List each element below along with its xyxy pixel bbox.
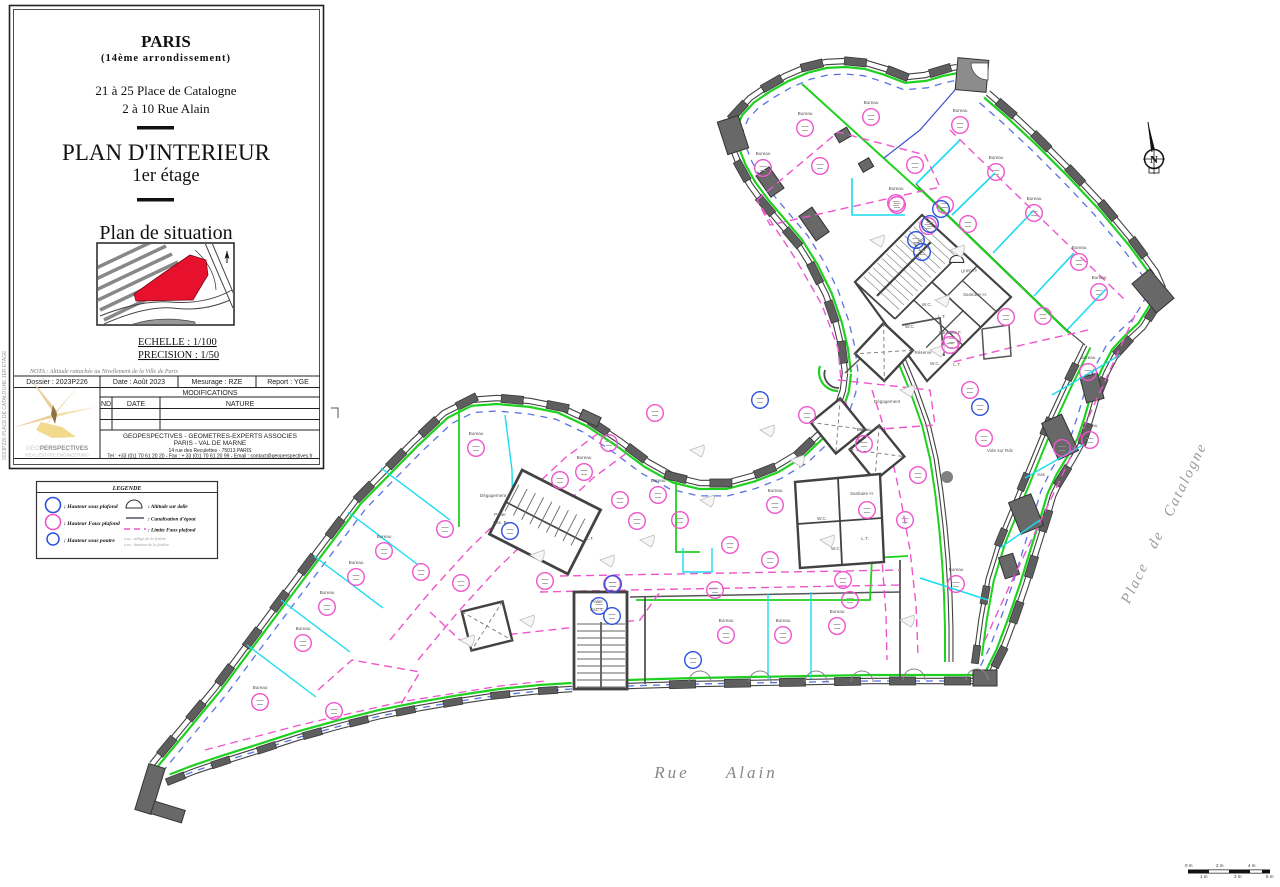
svg-text:Date : Août 2023: Date : Août 2023 [113, 379, 165, 386]
svg-text:W.C.: W.C. [930, 361, 940, 366]
svg-text:Bureau: Bureau [1072, 245, 1087, 250]
svg-text:IND.: IND. [99, 401, 113, 408]
svg-text:Bureau: Bureau [776, 618, 791, 623]
svg-text:: Hauteur sous plafond: : Hauteur sous plafond [64, 504, 118, 510]
svg-text:Bureau: Bureau [349, 560, 364, 565]
svg-text:Bureau: Bureau [469, 431, 484, 436]
svg-text:PLAN D'INTERIEUR: PLAN D'INTERIEUR [62, 140, 271, 165]
svg-text:: Canalisation d'égout: : Canalisation d'égout [148, 517, 196, 523]
svg-text:Bureau: Bureau [864, 100, 879, 105]
svg-text:Bureau: Bureau [296, 626, 311, 631]
svg-text:Esc. B: Esc. B [493, 520, 506, 525]
svg-text:3 m: 3 m [1234, 874, 1242, 879]
svg-text:0 m: 0 m [1185, 863, 1193, 868]
svg-text:: Hauteur sous poutre: : Hauteur sous poutre [64, 538, 115, 544]
svg-text:DATE: DATE [127, 401, 145, 408]
svg-text:Bureau: Bureau [756, 151, 771, 156]
svg-text:Plan de situation: Plan de situation [99, 222, 232, 244]
svg-text:Sas: Sas [1037, 472, 1046, 477]
svg-text:NATURE: NATURE [226, 401, 255, 408]
svg-text:L.T.: L.T. [953, 362, 960, 367]
svg-text:21 à 25 Place de Catalogne: 21 à 25 Place de Catalogne [95, 83, 236, 98]
svg-text:Esc. C: Esc. C [590, 607, 604, 612]
svg-text:Report : YGE: Report : YGE [267, 379, 309, 386]
svg-text:Tel : +33 (0)1 70 61 20 20 - F: Tel : +33 (0)1 70 61 20 20 - Fax : + 33 … [107, 454, 313, 460]
svg-text:Palier: Palier [494, 512, 506, 517]
svg-text:2 m: 2 m [1216, 863, 1224, 868]
svg-text:1er étage: 1er étage [132, 166, 199, 186]
svg-text:Bureau: Bureau [798, 111, 813, 116]
svg-text:W.C.: W.C. [905, 324, 915, 329]
svg-text:Bureau: Bureau [1083, 423, 1098, 428]
svg-text:Réserve: Réserve [914, 350, 932, 355]
svg-text:Sanitaire H.: Sanitaire H. [963, 292, 987, 297]
svg-text:5 m: 5 m [1266, 874, 1274, 879]
svg-text:Bureau: Bureau [989, 155, 1004, 160]
svg-text:PARIS - VAL DE MARNE: PARIS - VAL DE MARNE [174, 440, 247, 447]
svg-text:Dégagement: Dégagement [480, 493, 507, 498]
svg-text:Bureau: Bureau [1092, 275, 1107, 280]
svg-text:ECHELLE : 1/100: ECHELLE : 1/100 [138, 337, 217, 348]
svg-text:1 m: 1 m [1200, 874, 1208, 879]
svg-text:MODIFICATIONS: MODIFICATIONS [182, 390, 237, 397]
svg-text:x.xx : allège de la fenêtre: x.xx : allège de la fenêtre [123, 536, 166, 541]
svg-text:x.xx : hauteur de la fenêtre: x.xx : hauteur de la fenêtre [123, 542, 169, 547]
svg-text:Palier: Palier [591, 599, 603, 604]
svg-text:4 m: 4 m [1248, 863, 1256, 868]
svg-text:REAL ESTATE ENGINEERING: REAL ESTATE ENGINEERING [25, 453, 89, 458]
svg-text:2023P226 PLACE DE CATALOGNE: 2023P226 PLACE DE CATALOGNE 1ER ETAGE [2, 350, 8, 460]
svg-text:Sanitaire H.: Sanitaire H. [850, 491, 874, 496]
svg-text:Bureau: Bureau [830, 609, 845, 614]
svg-text:Bureau: Bureau [857, 427, 872, 432]
svg-text:Bureau: Bureau [949, 567, 964, 572]
svg-text:GEOPERSPECTIVES: GEOPERSPECTIVES [26, 445, 88, 452]
svg-text:: Altitude sur dalle: : Altitude sur dalle [148, 504, 188, 510]
svg-text:Bureau: Bureau [768, 488, 783, 493]
svg-text:Bureau: Bureau [377, 534, 392, 539]
svg-text:Bureau: Bureau [953, 108, 968, 113]
svg-text:2 à 10 Rue Alain: 2 à 10 Rue Alain [122, 101, 210, 116]
svg-text:W.C.: W.C. [922, 302, 932, 307]
svg-text:L.T.: L.T. [938, 314, 945, 319]
svg-text:PARIS: PARIS [141, 32, 191, 51]
svg-text:(14ème arrondissement): (14ème arrondissement) [101, 53, 231, 64]
svg-text:W.C.: W.C. [831, 546, 841, 551]
svg-text:Vide sur Rdc: Vide sur Rdc [987, 448, 1014, 453]
svg-text:L.T.: L.T. [586, 536, 593, 541]
svg-text:W.C.: W.C. [817, 516, 827, 521]
svg-text:PRECISION : 1/50: PRECISION : 1/50 [138, 350, 219, 361]
svg-text:Bureau: Bureau [1027, 196, 1042, 201]
svg-text:Dégagement: Dégagement [874, 399, 901, 404]
svg-text:Rue Alain: Rue Alain [653, 763, 778, 782]
svg-text:LEGENDE: LEGENDE [112, 486, 142, 492]
svg-text:Bureau: Bureau [889, 186, 904, 191]
svg-text:Sanitaire F.: Sanitaire F. [939, 330, 962, 335]
svg-text:Bureau: Bureau [320, 590, 335, 595]
svg-text:Bureau: Bureau [253, 685, 268, 690]
svg-text:Bureau: Bureau [1081, 355, 1096, 360]
svg-text:Bureau: Bureau [719, 618, 734, 623]
svg-text:: Hauteur Faux plafond: : Hauteur Faux plafond [64, 521, 120, 527]
svg-text:NOTA : Altitude rattachée au: NOTA : Altitude rattachée au Nivellement… [29, 369, 179, 375]
svg-text:: Limite Faux plafond: : Limite Faux plafond [148, 528, 196, 534]
svg-text:GEOPESPECTIVES - GEOMETRES-EXP: GEOPESPECTIVES - GEOMETRES-EXPERTS ASSOC… [123, 433, 298, 440]
svg-text:Mesurage : RZE: Mesurage : RZE [192, 379, 243, 386]
svg-text:Bureau: Bureau [651, 478, 666, 483]
svg-text:L.T.: L.T. [861, 536, 868, 541]
svg-text:Bureau: Bureau [577, 455, 592, 460]
